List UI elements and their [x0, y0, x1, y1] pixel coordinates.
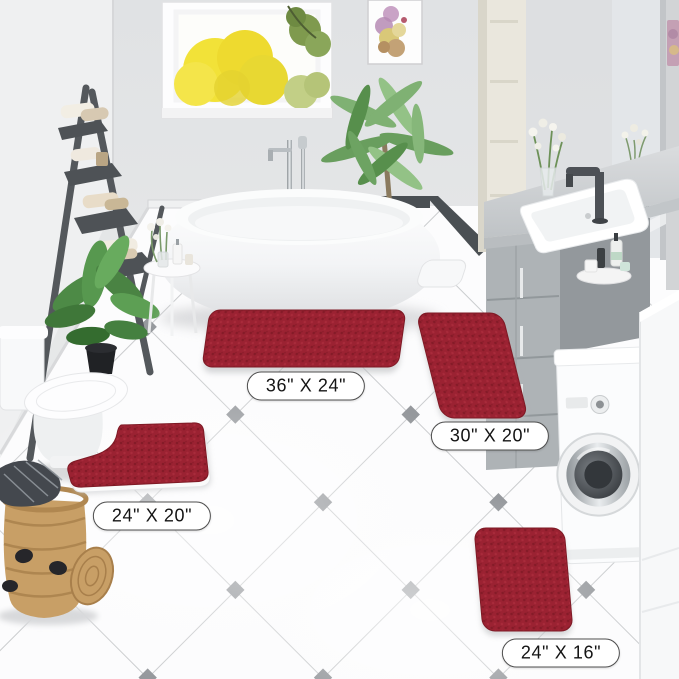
- drawer-handle: [520, 326, 523, 356]
- size-label-30x20: 30" X 20": [431, 422, 549, 451]
- window: [162, 2, 332, 118]
- window-sill: [162, 108, 332, 118]
- size-label-36x24: 36" X 24": [247, 372, 365, 401]
- sink-drain: [585, 213, 591, 219]
- size-label-24x16: 24" X 16": [502, 639, 620, 668]
- size-label-24x20: 24" X 20": [93, 502, 211, 531]
- size-label-text: 36" X 24": [266, 376, 346, 397]
- wall-art: [368, 0, 422, 64]
- drawer-handle: [520, 268, 523, 298]
- right-edge-panel: [666, 0, 679, 290]
- bathroom-scene: [0, 0, 679, 679]
- size-label-text: 30" X 20": [450, 426, 530, 447]
- rug-36x24: [202, 310, 406, 373]
- size-label-text: 24" X 16": [521, 643, 601, 664]
- size-label-text: 24" X 20": [112, 506, 192, 527]
- bathroom-product-image: 36" X 24" 30" X 20" 24" X 20" 24" X 16": [0, 0, 679, 679]
- rug-24x16: [474, 528, 573, 636]
- detergent-drawer: [566, 397, 588, 409]
- laundry-cabinet: [640, 290, 679, 679]
